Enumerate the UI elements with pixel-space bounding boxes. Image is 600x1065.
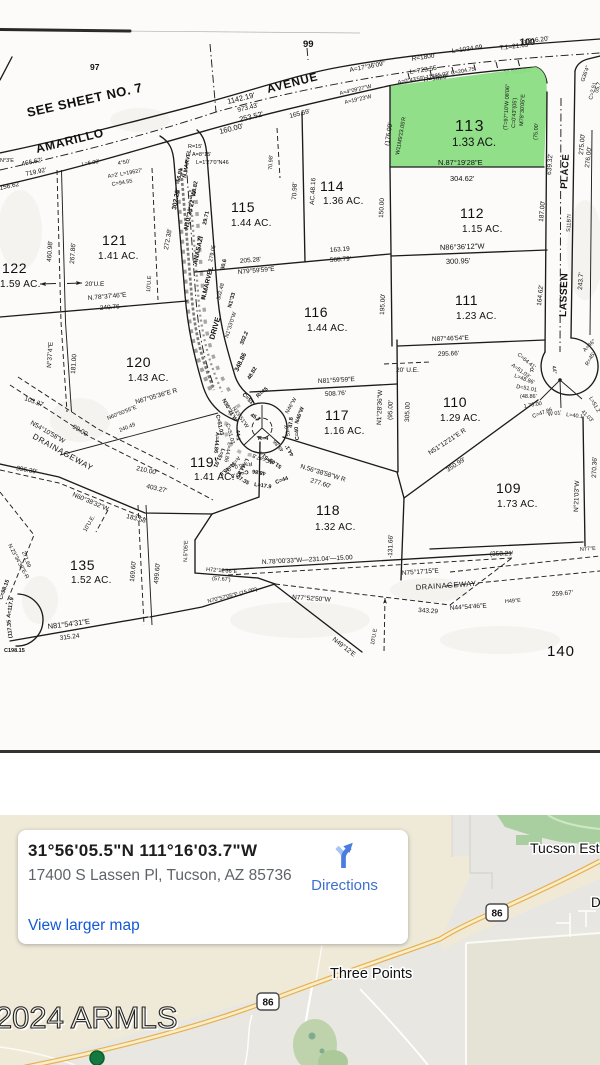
svg-text:1.43 AC.: 1.43 AC. (128, 373, 169, 384)
svg-text:112: 112 (460, 205, 484, 221)
svg-text:N86°36'12"W: N86°36'12"W (440, 241, 486, 252)
svg-text:20'U.E: 20'U.E (85, 281, 105, 288)
svg-text:44.1: 44.1 (234, 430, 241, 441)
svg-text:-131.66': -131.66' (387, 535, 395, 559)
svg-text:343.29: 343.29 (418, 607, 439, 615)
svg-text:N77°E: N77°E (580, 546, 597, 553)
svg-text:R=15': R=15' (188, 144, 202, 150)
svg-text:1.41 AC.: 1.41 AC. (98, 251, 139, 262)
svg-text:109: 109 (496, 480, 521, 496)
svg-text:195.00': 195.00' (379, 294, 387, 315)
svg-text:115: 115 (231, 199, 255, 215)
svg-text:99: 99 (303, 39, 314, 50)
svg-text:1.59 AC.: 1.59 AC. (0, 279, 41, 290)
svg-text:Tucson Est: Tucson Est (530, 840, 600, 856)
svg-text:1.52 AC.: 1.52 AC. (71, 575, 112, 586)
svg-text:304.62': 304.62' (450, 174, 475, 183)
svg-text:(75.00': (75.00' (533, 123, 540, 140)
svg-text:N.5°05'E: N.5°05'E (183, 540, 190, 562)
svg-text:1.32 AC.: 1.32 AC. (315, 522, 356, 533)
svg-text:121: 121 (102, 232, 127, 248)
svg-text:86: 86 (491, 909, 503, 920)
svg-text:122: 122 (2, 260, 27, 276)
svg-text:(48.86': (48.86' (520, 394, 537, 400)
svg-text:L=1'27'0"N46: L=1'27'0"N46 (196, 160, 229, 166)
svg-text:PLACE: PLACE (559, 153, 572, 189)
svg-text:70.98': 70.98' (291, 182, 299, 200)
svg-text:116: 116 (304, 304, 328, 320)
svg-text:163.19: 163.19 (330, 246, 351, 254)
svg-text:S11B7I: S11B7I (566, 214, 573, 232)
svg-text:639.32': 639.32' (546, 154, 554, 176)
svg-text:Three Points: Three Points (330, 966, 412, 982)
svg-text:A=8°15': A=8°15' (192, 152, 211, 158)
svg-text:140: 140 (547, 643, 575, 660)
svg-text:300.95': 300.95' (446, 256, 471, 266)
svg-text:97: 97 (90, 62, 100, 72)
svg-text:1.15 AC.: 1.15 AC. (462, 224, 503, 235)
svg-text:114: 114 (320, 178, 344, 194)
svg-text:1.16 AC.: 1.16 AC. (324, 426, 365, 437)
svg-text:86: 86 (262, 998, 274, 1009)
svg-text:1.33 AC.: 1.33 AC. (452, 137, 496, 149)
svg-text:259.67': 259.67' (552, 590, 574, 598)
svg-text:181.00: 181.00 (70, 353, 78, 374)
svg-text:N°3'E: N°3'E (0, 158, 14, 164)
svg-text:1.36 AC.: 1.36 AC. (323, 196, 364, 207)
svg-text:508.76': 508.76' (325, 390, 346, 398)
svg-text:135: 135 (70, 557, 95, 573)
svg-text:R=4: R=4 (258, 436, 269, 442)
svg-text:H49°E: H49°E (505, 598, 522, 605)
svg-text:47.8: 47.8 (288, 417, 295, 428)
svg-text:113: 113 (455, 118, 485, 135)
svg-text:AC.48.16: AC.48.16 (309, 177, 317, 205)
svg-text:C198.15: C198.15 (4, 648, 25, 654)
svg-text:568.79': 568.79' (330, 256, 352, 264)
svg-text:70.98': 70.98' (268, 155, 275, 170)
svg-text:460.98': 460.98' (46, 241, 54, 263)
svg-text:10'U.E: 10'U.E (146, 275, 153, 292)
svg-text:(95.00': (95.00' (387, 400, 395, 420)
svg-text:1.73 AC.: 1.73 AC. (497, 499, 538, 510)
svg-text:267.86': 267.86' (69, 243, 77, 265)
svg-text:N87°46'54"E: N87°46'54"E (432, 334, 470, 343)
svg-text:1.41 AC.: 1.41 AC. (194, 472, 235, 483)
svg-text:1.44 AC.: 1.44 AC. (231, 218, 272, 229)
svg-text:118: 118 (316, 502, 340, 518)
svg-text:119': 119' (190, 454, 217, 470)
svg-text:295.66': 295.66' (438, 350, 459, 358)
svg-text:1.29 AC.: 1.29 AC. (440, 413, 481, 424)
svg-text:1.44 AC.: 1.44 AC. (307, 323, 348, 334)
svg-text:LASSEN: LASSEN (558, 273, 571, 318)
svg-text:C=40: C=40 (294, 427, 301, 441)
svg-text:1.23 AC.: 1.23 AC. (456, 311, 497, 322)
svg-text:110: 110 (443, 394, 467, 410)
svg-text:D: D (591, 895, 600, 910)
svg-text:243.7': 243.7' (577, 272, 585, 290)
svg-text:150.00: 150.00 (378, 198, 386, 219)
svg-text:120: 120 (126, 354, 151, 370)
svg-text:N.87°19'28"E: N.87°19'28"E (438, 158, 483, 167)
svg-text:111: 111 (455, 292, 478, 308)
svg-text:N°21'03"W: N°21'03"W (572, 480, 581, 513)
svg-text:270.36': 270.36' (591, 457, 599, 478)
svg-text:305.00: 305.00 (404, 402, 412, 422)
svg-text:N1°28'36"W: N1°28'36"W (375, 389, 384, 425)
svg-text:20' U.E.: 20' U.E. (396, 367, 419, 374)
svg-text:R: R (530, 368, 534, 374)
svg-text:117: 117 (325, 407, 349, 423)
